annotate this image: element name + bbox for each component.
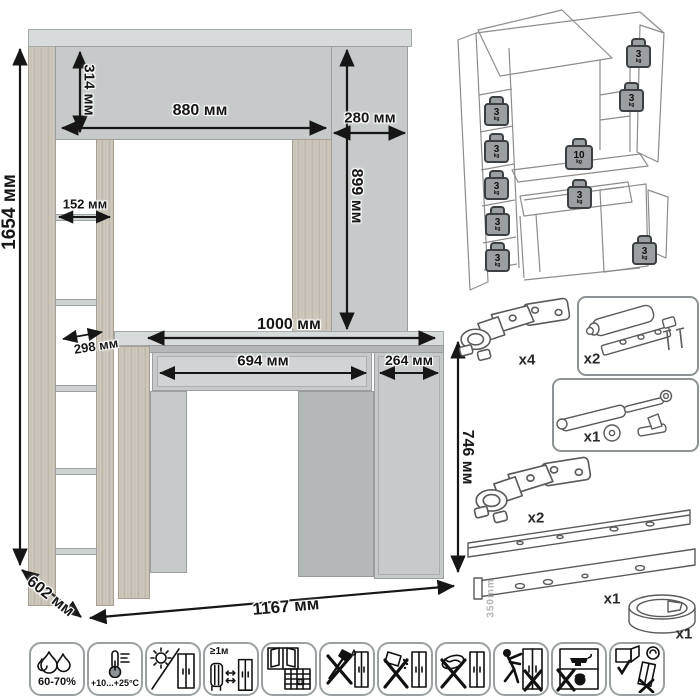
shelf [55, 299, 97, 306]
dim-drawer-width: 694 мм [237, 353, 288, 370]
care-no-abrasives [377, 642, 433, 696]
dim-desk-height: 746 мм [458, 430, 476, 485]
care-ventilation: 21 [261, 642, 317, 696]
weight-badge: 3kg [485, 242, 510, 272]
desk-left-side-panel [118, 346, 150, 599]
care-humidity: 60-70% [29, 642, 85, 696]
weight-badge: 3kg [485, 206, 510, 236]
shelf [55, 385, 97, 392]
hutch-right-column [331, 46, 408, 333]
furniture-spec-sheet: 1654 мм 314 мм 880 мм 280 мм 899 мм 152 … [0, 0, 700, 700]
weight-badge: 3kg [484, 133, 509, 163]
temperature-label: +10...+25°C [91, 678, 139, 688]
desk-left-leg [150, 391, 187, 573]
opening-right-divider [292, 139, 332, 334]
window-calendar-icon: 21 [265, 646, 313, 692]
drawer-slides-length: 350mm [486, 578, 497, 617]
humidity-label: 60-70% [38, 677, 76, 687]
weight-badge: 3kg [484, 170, 509, 200]
no-dragging-icon [497, 646, 545, 692]
care-no-sharp-tools [319, 642, 375, 696]
weight-badge: 3kg [632, 235, 657, 265]
grommet-qty: x1 [676, 626, 693, 643]
weight-badge: 3kg [626, 38, 651, 68]
weight-badge: 10kg [565, 138, 593, 170]
weight-badge: 3kg [567, 179, 592, 209]
hutch-top-face [28, 29, 412, 47]
care-icons-row: 60-70% +10...+25°C ≥1м [29, 642, 665, 696]
shelf [55, 468, 97, 475]
care-no-dragging [493, 642, 549, 696]
left-side-panel [28, 38, 56, 606]
no-powder-icon [381, 647, 429, 691]
shelf [55, 548, 97, 555]
dim-shelf-width: 152 мм [63, 197, 108, 212]
dim-column-width: 280 мм [344, 110, 395, 127]
shelf [55, 214, 97, 221]
weight-badge: 3kg [484, 96, 509, 126]
drawer-slides-qty: x1 [604, 591, 621, 608]
gas-lift-qty: x1 [584, 429, 601, 446]
sun-shade-icon [149, 647, 197, 691]
weight-badge: 3kg [619, 82, 644, 112]
radiator-cabinet-icon [207, 652, 255, 694]
dim-overall-width: 1167 мм [252, 594, 320, 620]
dim-overall-height: 1654 мм [0, 174, 21, 250]
heat-distance-label: ≥1м [210, 647, 228, 657]
care-no-overloading [551, 642, 607, 696]
care-no-scrubbing [435, 642, 491, 696]
pedestal-door [374, 352, 444, 579]
drawer-slides-illustration [468, 510, 695, 599]
gas-lift-box [552, 378, 699, 452]
hinge-bottom-qty: x2 [528, 510, 545, 527]
dim-door-width: 264 мм [385, 352, 433, 368]
install-upright-icon [613, 645, 661, 693]
dim-hutch-span: 880 мм [173, 102, 228, 120]
no-axe-icon [323, 647, 371, 691]
calendar-day: 21 [298, 680, 304, 685]
care-avoid-sunlight [145, 642, 201, 696]
dim-column-height: 899 мм [347, 169, 365, 224]
pedestal-side [298, 391, 374, 577]
dim-desktop-width: 1000 мм [257, 316, 321, 334]
care-temperature: +10...+25°C [87, 642, 143, 696]
hinge-top-qty: x4 [519, 352, 536, 369]
hinge-top-illustration [459, 298, 570, 361]
care-heat-distance: ≥1м [203, 642, 259, 696]
no-sponge-icon [439, 647, 487, 691]
push-latch-qty: x2 [584, 351, 601, 368]
care-install-upright [609, 642, 665, 696]
pedestal-door-inset [378, 356, 440, 575]
water-drops-icon [35, 651, 79, 677]
no-overload-icon [555, 646, 603, 692]
thermometer-icon [93, 650, 137, 678]
dim-hutch-height: 314 мм [81, 64, 98, 115]
